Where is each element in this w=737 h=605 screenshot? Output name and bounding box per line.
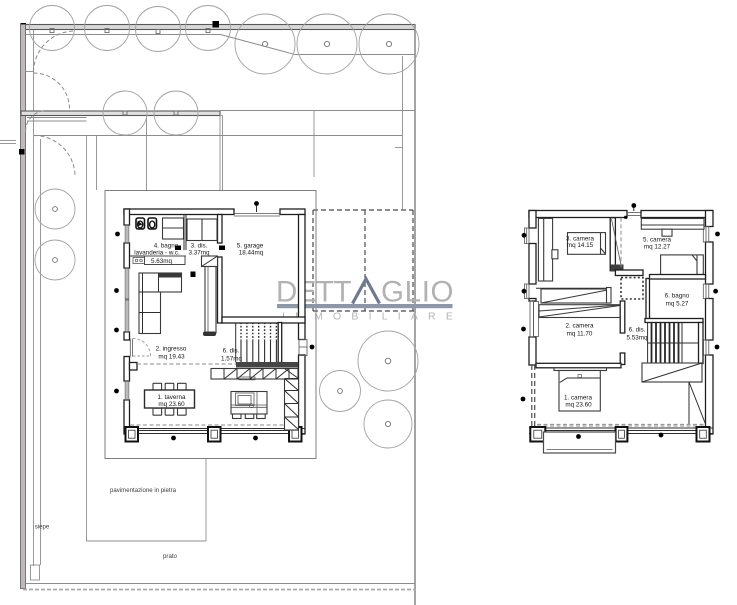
svg-text:siepe: siepe <box>35 524 50 531</box>
svg-text:1. taverna: 1. taverna <box>157 394 186 401</box>
svg-text:1.57mq: 1.57mq <box>221 356 243 363</box>
svg-text:DETT: DETT <box>276 276 352 309</box>
svg-text:6. bagno: 6. bagno <box>665 293 690 300</box>
svg-text:5.63mq: 5.63mq <box>151 258 173 265</box>
svg-text:mq 23.60: mq 23.60 <box>565 402 592 409</box>
svg-text:5.53mq: 5.53mq <box>626 335 648 342</box>
svg-text:lavanderia - w.c.: lavanderia - w.c. <box>134 250 180 257</box>
svg-text:pavimentazione in pietra: pavimentazione in pietra <box>110 487 177 494</box>
svg-text:1. camera: 1. camera <box>564 395 592 402</box>
svg-text:3. dis.: 3. dis. <box>191 243 208 250</box>
svg-text:IMMOBILIARE: IMMOBILIARE <box>282 311 463 323</box>
svg-text:GLIO: GLIO <box>381 276 454 309</box>
svg-text:2. camera: 2. camera <box>566 323 594 330</box>
svg-text:6. dis.: 6. dis. <box>223 348 240 355</box>
svg-text:mq 12.27: mq 12.27 <box>644 244 671 251</box>
svg-text:5. garage: 5. garage <box>237 243 264 250</box>
svg-text:mq 5.27: mq 5.27 <box>666 301 689 308</box>
svg-text:5. camera: 5. camera <box>643 237 671 244</box>
svg-text:6. dis.: 6. dis. <box>629 327 646 334</box>
svg-text:mq 23.60: mq 23.60 <box>158 401 185 408</box>
svg-text:mq 14.15: mq 14.15 <box>567 242 594 249</box>
svg-text:mq 19.43: mq 19.43 <box>158 354 185 361</box>
svg-text:3.37mq: 3.37mq <box>188 250 210 257</box>
svg-text:mq 11.70: mq 11.70 <box>567 331 593 338</box>
svg-text:18.44mq: 18.44mq <box>239 250 264 257</box>
svg-text:2. ingresso: 2. ingresso <box>156 346 187 353</box>
svg-text:prato: prato <box>163 553 178 560</box>
svg-text:4. bagno: 4. bagno <box>154 243 179 250</box>
